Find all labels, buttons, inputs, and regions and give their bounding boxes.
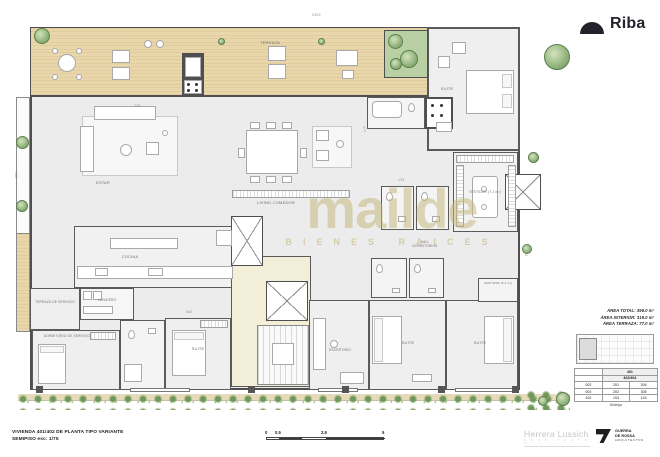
- architect-left-name: Herrera Lussich: [524, 429, 590, 439]
- sofa: [94, 106, 156, 120]
- burner: [195, 83, 198, 86]
- unit-table-grid: 401 402/404 002 201 304 003 202 305 102 …: [574, 368, 658, 402]
- dim-kitchen: 540: [186, 310, 192, 314]
- armchair: [146, 142, 159, 155]
- label-terraza-servicio: TERRAZA DE SERVICIO: [33, 300, 77, 304]
- chair: [282, 122, 292, 129]
- burner: [431, 104, 434, 107]
- armchair: [452, 42, 466, 54]
- burner: [187, 83, 190, 86]
- toilet: [386, 192, 393, 201]
- round-table: [58, 54, 76, 72]
- pillow: [502, 94, 512, 108]
- burner: [440, 104, 443, 107]
- sink: [148, 328, 156, 334]
- terrace-table: [268, 64, 286, 79]
- tree: [16, 136, 29, 149]
- unit-col-header: 401: [602, 369, 657, 376]
- side-table: [162, 130, 168, 136]
- terrace-plant: [218, 38, 225, 45]
- label-living: LIVING COMEDOR: [255, 200, 297, 205]
- toilet: [414, 264, 421, 273]
- drawing-sheet: TERRAZA ESTAR LIVING COMEDOR COCINA TERR…: [0, 0, 660, 457]
- cell: [575, 369, 603, 376]
- sofa: [80, 126, 94, 172]
- chair: [266, 176, 276, 183]
- bench: [436, 122, 452, 132]
- label-dormitorio-servicio: DORMITORIO DE SERVICIO: [38, 334, 96, 338]
- tree: [538, 396, 548, 406]
- cell: 304: [630, 382, 658, 389]
- cell: 305: [630, 388, 658, 395]
- scale-segment: [279, 438, 303, 439]
- dim-bath-b: 123: [398, 178, 404, 182]
- bench: [412, 374, 432, 382]
- scale-tick-05: 0.5: [275, 430, 281, 435]
- label-suite-2: SUITE: [390, 340, 426, 345]
- terrace-sofa: [336, 50, 358, 66]
- scale-tick-25: 2.5: [321, 430, 327, 435]
- room-bath-2: [371, 258, 407, 298]
- elevator: [266, 281, 308, 321]
- patio-plant: [388, 34, 403, 49]
- cell: 124: [630, 395, 658, 402]
- unit-table-footer: Bodega: [574, 403, 658, 407]
- key-plan-highlight: [579, 338, 597, 360]
- desk: [313, 318, 326, 370]
- dining-table: [246, 130, 298, 174]
- area-terraza: ÁREA TERRAZA: 77.0 m²: [548, 321, 654, 328]
- unit-col-subheader: 402/404: [602, 375, 657, 382]
- label-vestidor-2: VESTIDOR (5.2 m²): [480, 282, 516, 285]
- floor-plan: TERRAZA ESTAR LIVING COMEDOR COCINA TERR…: [0, 0, 660, 457]
- laundry-counter: [83, 306, 113, 314]
- label-suite-tr: SUITE: [432, 86, 462, 91]
- dim-living: 728: [134, 104, 140, 108]
- lounger: [112, 67, 130, 80]
- sink: [392, 288, 400, 293]
- chair: [282, 176, 292, 183]
- dim-left: 345: [14, 172, 18, 178]
- burner: [187, 89, 190, 92]
- area-total: ÁREA TOTAL: 396.0 m²: [548, 308, 654, 315]
- dome-icon: [580, 22, 604, 34]
- left-balcony: [16, 97, 30, 235]
- chair: [300, 148, 307, 158]
- terrace-tree: [34, 28, 50, 44]
- scale-bar: 0 0.5 2.5 5: [266, 430, 388, 444]
- toilet: [408, 103, 415, 112]
- pantry: [216, 230, 232, 246]
- patio-plant: [400, 50, 418, 68]
- tree: [556, 392, 570, 406]
- stool: [144, 40, 152, 48]
- label-suite-3: SUITE: [460, 340, 500, 345]
- scale-segment: [326, 438, 385, 439]
- armchair: [438, 56, 450, 68]
- tree: [16, 200, 28, 212]
- terrace-side-table: [342, 70, 354, 79]
- grill-plate: [184, 80, 202, 94]
- terrace-plant: [318, 38, 325, 45]
- vestidor-island: [472, 176, 498, 218]
- area-summary: ÁREA TOTAL: 396.0 m² ÁREA INTERIOR: 319.…: [548, 308, 654, 328]
- wardrobe: [200, 320, 228, 328]
- sink: [398, 216, 406, 222]
- architect-logo-left: Herrera Lussich A R Q U I T E C T O S: [524, 429, 590, 449]
- room-bath-b: [416, 186, 449, 230]
- guerra-line-3: ARQUITECTOS: [615, 438, 644, 442]
- kitchen-sink: [95, 268, 108, 276]
- cell: 201: [602, 382, 630, 389]
- area-interior: ÁREA INTERIOR: 319.0 m²: [548, 315, 654, 322]
- shower: [124, 364, 142, 382]
- dim-top: 2325: [312, 13, 321, 17]
- patio-plant: [390, 58, 402, 70]
- room-terraza-servicio: [30, 288, 80, 330]
- tree: [528, 152, 539, 163]
- title-line-2: SEMIPISO esc: 1/75: [12, 437, 212, 444]
- brand-name: Riba: [610, 15, 645, 33]
- cell: 102: [575, 395, 603, 402]
- sink: [428, 288, 436, 293]
- pillow: [174, 332, 204, 340]
- burner: [195, 89, 198, 92]
- chair: [250, 176, 260, 183]
- toilet: [128, 330, 135, 339]
- elevator: [231, 216, 263, 266]
- grill-counter: [185, 57, 201, 77]
- title-line-1: VIVIENDA 401/402 DE PLANTA TIPO VARIANTE: [12, 430, 212, 437]
- lounger: [112, 50, 130, 63]
- architect-left-sub: A R Q U I T E C T O S: [524, 439, 590, 447]
- cell: 202: [602, 388, 630, 395]
- chair: [76, 74, 82, 80]
- stairs-landing: [272, 343, 294, 365]
- armchair: [316, 130, 329, 141]
- label-terraza: TERRAZA: [250, 40, 290, 45]
- pillow: [502, 74, 512, 88]
- room-bath-a: [381, 186, 414, 230]
- guerra-icon: [596, 429, 611, 443]
- sofa: [340, 372, 364, 384]
- chair: [266, 122, 276, 129]
- pillow: [40, 346, 64, 353]
- pillow: [503, 318, 512, 362]
- label-cocina: COCINA: [110, 254, 150, 259]
- title-block: VIVIENDA 401/402 DE PLANTA TIPO VARIANTE…: [12, 430, 212, 444]
- chair: [250, 122, 260, 129]
- round-table: [336, 140, 344, 148]
- label-vestidor-1: VESTIDOR (7.2 m²): [462, 190, 508, 194]
- chair: [52, 48, 58, 54]
- architect-logo-right: GUERRA DE ROSSA ARQUITECTOS: [596, 428, 654, 448]
- room-bath-3: [409, 258, 444, 298]
- bathtub: [372, 101, 402, 118]
- closet: [456, 155, 514, 163]
- pillow: [374, 318, 383, 362]
- key-plan: [576, 334, 654, 364]
- sink: [432, 216, 440, 222]
- coffee-table: [120, 144, 132, 156]
- burner: [440, 114, 443, 117]
- toilet: [421, 192, 428, 201]
- desk-chair: [330, 340, 338, 348]
- cell: 103: [602, 395, 630, 402]
- dim-bath-a: 177: [362, 126, 366, 132]
- chair: [52, 74, 58, 80]
- label-estar: ESTAR: [88, 180, 118, 185]
- scale-tick-5: 5: [382, 430, 384, 435]
- terrace-table: [268, 46, 286, 61]
- label-hall-dormitorios: HALL DORMITORIOS: [408, 240, 442, 248]
- stool: [156, 40, 164, 48]
- guerra-text: GUERRA DE ROSSA ARQUITECTOS: [615, 429, 644, 442]
- brand-logo: Riba: [578, 14, 653, 38]
- chair: [238, 148, 245, 158]
- tree: [522, 244, 532, 254]
- cooktop: [148, 268, 163, 276]
- island-knob: [481, 204, 487, 210]
- shrubs: [18, 392, 570, 410]
- sideboard: [232, 190, 350, 198]
- cell: 003: [575, 388, 603, 395]
- burner: [431, 114, 434, 117]
- tree: [544, 44, 570, 70]
- scale-tick-0: 0: [265, 430, 267, 435]
- label-lavadero: LAVADERO: [84, 298, 130, 302]
- cell: [575, 375, 603, 382]
- closet: [508, 165, 516, 227]
- label-suite-1: SUITE: [180, 346, 216, 351]
- unit-table: 401 402/404 002 201 304 003 202 305 102 …: [574, 368, 658, 407]
- label-escritorio: ESCRITORIO: [320, 348, 360, 352]
- cell: 002: [575, 382, 603, 389]
- toilet: [376, 264, 383, 273]
- closet: [456, 165, 464, 227]
- armchair: [316, 150, 329, 161]
- left-deck-strip: [16, 233, 30, 332]
- chair: [76, 48, 82, 54]
- kitchen-island: [110, 238, 178, 249]
- scale-bar-graphic: [266, 437, 384, 440]
